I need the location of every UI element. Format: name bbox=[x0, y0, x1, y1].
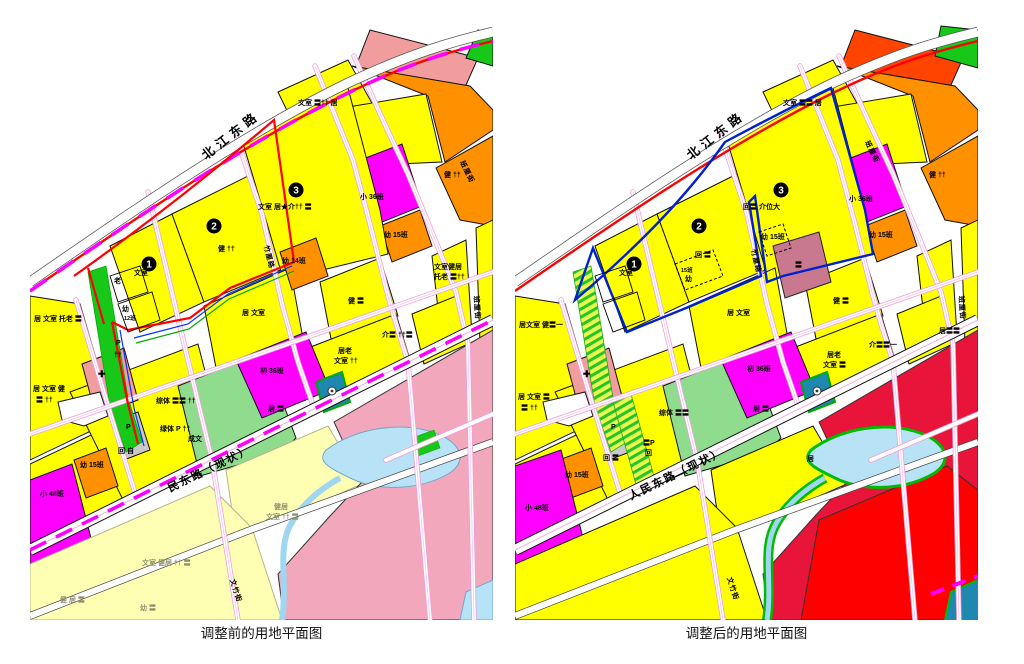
parcel-label: 〓 bbox=[795, 262, 802, 270]
hospital-cross-icon: ✚ bbox=[98, 369, 106, 379]
hospital-cross-icon: ✚ bbox=[583, 369, 591, 379]
parcel-label: 小 48班 bbox=[40, 491, 64, 499]
planning-maps-page: 1 2 3 北江东路 民东路（现状） 文竹街 班厘街 班厘街 竹厘路 文室 老 … bbox=[0, 0, 1024, 664]
parcel-label: 介〓 ††〓 bbox=[382, 332, 413, 340]
parcel-label: 健 †† bbox=[218, 246, 235, 254]
parcel-label: 〓P bbox=[643, 440, 655, 448]
parcel-label: 居老 bbox=[338, 348, 352, 356]
parcel-label: 文室 〓 bbox=[823, 362, 846, 370]
parcel-label: 幼 15班 bbox=[869, 232, 893, 240]
parcel-label: 幼 bbox=[685, 276, 692, 284]
parcel-label: 居 文室 健 bbox=[33, 386, 65, 394]
parcel-label: 文室 〓†† 居 bbox=[298, 100, 338, 108]
parcel-label: 老 bbox=[114, 278, 121, 286]
parcel-label: 居 文室 托老 〓 bbox=[34, 316, 82, 324]
plot-3-number: 3 bbox=[293, 186, 299, 197]
parcel-label: 幼 bbox=[122, 306, 129, 314]
parcel-label: 〓 †† bbox=[36, 397, 53, 405]
parcel-label: 健 †† bbox=[929, 172, 946, 180]
parcel-label: 幼 15班 bbox=[384, 232, 408, 240]
parcel-label: 小 36班 bbox=[360, 194, 384, 202]
parcel-label: 回 自 bbox=[118, 448, 134, 456]
parcel-label: 幼 15班 bbox=[80, 462, 104, 470]
parcel-label: 健 居 〓 bbox=[60, 597, 85, 605]
parcel-label: 文室 †† 〓 bbox=[266, 514, 299, 522]
parcel-label: 文室健居 bbox=[434, 264, 462, 272]
parcel-label: 幼 15班 bbox=[761, 234, 785, 242]
plot-2-number: 2 bbox=[211, 222, 217, 233]
parcel-label: 托老 〓†† bbox=[434, 274, 465, 282]
parcel-label: 回 〓 bbox=[695, 252, 711, 260]
parcel-label: 文室 居★介†† 〓 bbox=[258, 204, 312, 212]
caption-before: 调整前的用地平面图 bbox=[30, 626, 493, 642]
parcel-label: 居 文室 bbox=[242, 310, 265, 318]
parcel-label: 居 bbox=[807, 456, 814, 464]
parcel-label: 12班 bbox=[124, 316, 136, 322]
parcel-label: 幼 15班 bbox=[565, 472, 589, 480]
parcel-label: 〓 †† bbox=[521, 405, 538, 413]
caption-after: 调整后的用地平面图 bbox=[515, 626, 978, 642]
parcel-label: 健 〓 bbox=[348, 298, 364, 306]
parking-label: P bbox=[611, 424, 616, 432]
parcel-label: 初 36班 bbox=[747, 366, 771, 374]
parcel-label: 居 〓 bbox=[268, 406, 284, 414]
parcel-label: 初 36班 bbox=[260, 368, 284, 376]
parcel-label: 回〓 介位大 bbox=[743, 204, 780, 212]
plot-3-number: 3 bbox=[778, 186, 784, 197]
parcel-label: 回 bbox=[645, 450, 652, 458]
plot-2-number: 2 bbox=[696, 222, 702, 233]
parking-label: P bbox=[116, 340, 121, 348]
parcel-label: 介〓〓一 bbox=[869, 342, 897, 350]
parcel-label: 回 〓 bbox=[603, 455, 619, 463]
parcel-label: 幼 〓 bbox=[140, 605, 156, 613]
parcel-label: 小 36班 bbox=[849, 196, 873, 204]
parcel-label: 15班 bbox=[681, 268, 693, 274]
parcel-label: †† bbox=[114, 352, 122, 360]
parcel-label: 小 48班 bbox=[525, 505, 549, 513]
parcel-label: 成文 bbox=[188, 436, 202, 444]
parcel-label: 居老 bbox=[827, 352, 841, 360]
map-after-adjustment: 1 2 3 北江东路 人民东路（现状） 文竹街 班厘街 班厘街 竹厘路 文室 回… bbox=[515, 14, 978, 620]
parcel-label: 健 †† bbox=[444, 172, 461, 180]
parcel-label: 文室 bbox=[619, 270, 633, 278]
plot-1-number: 1 bbox=[146, 260, 152, 271]
plot-1-number: 1 bbox=[631, 260, 637, 271]
parcel-label: 幼 14班 bbox=[282, 258, 306, 266]
parcel-label: 健居 bbox=[274, 504, 288, 512]
parcel-label: 文室 bbox=[134, 270, 148, 278]
parcel-label: 居文室 健〓一 bbox=[519, 322, 563, 330]
parcel-label: 文室 †† bbox=[334, 358, 358, 366]
parcel-label: 综体 〓〓 †† bbox=[156, 398, 196, 406]
parcel-label: 健 〓 bbox=[833, 298, 849, 306]
parcel-label: 居 〓 bbox=[753, 406, 769, 414]
parcel-label: 综体 〓〓 bbox=[659, 410, 689, 418]
parking-label: P bbox=[126, 424, 131, 432]
parcel-label: 居 文室 bbox=[727, 310, 750, 318]
parcel-label: 绿体 P †† bbox=[160, 426, 190, 434]
parcel-label: 文室 〓〓 居 bbox=[783, 100, 822, 108]
parcel-label: 居〓〓 bbox=[939, 328, 960, 336]
parcel-label: 文室 健居 †† 〓 bbox=[142, 560, 191, 568]
map-before-adjustment: 1 2 3 北江东路 民东路（现状） 文竹街 班厘街 班厘街 竹厘路 文室 老 … bbox=[30, 14, 493, 620]
parcel-label: 居 文室 〓 bbox=[518, 394, 550, 402]
